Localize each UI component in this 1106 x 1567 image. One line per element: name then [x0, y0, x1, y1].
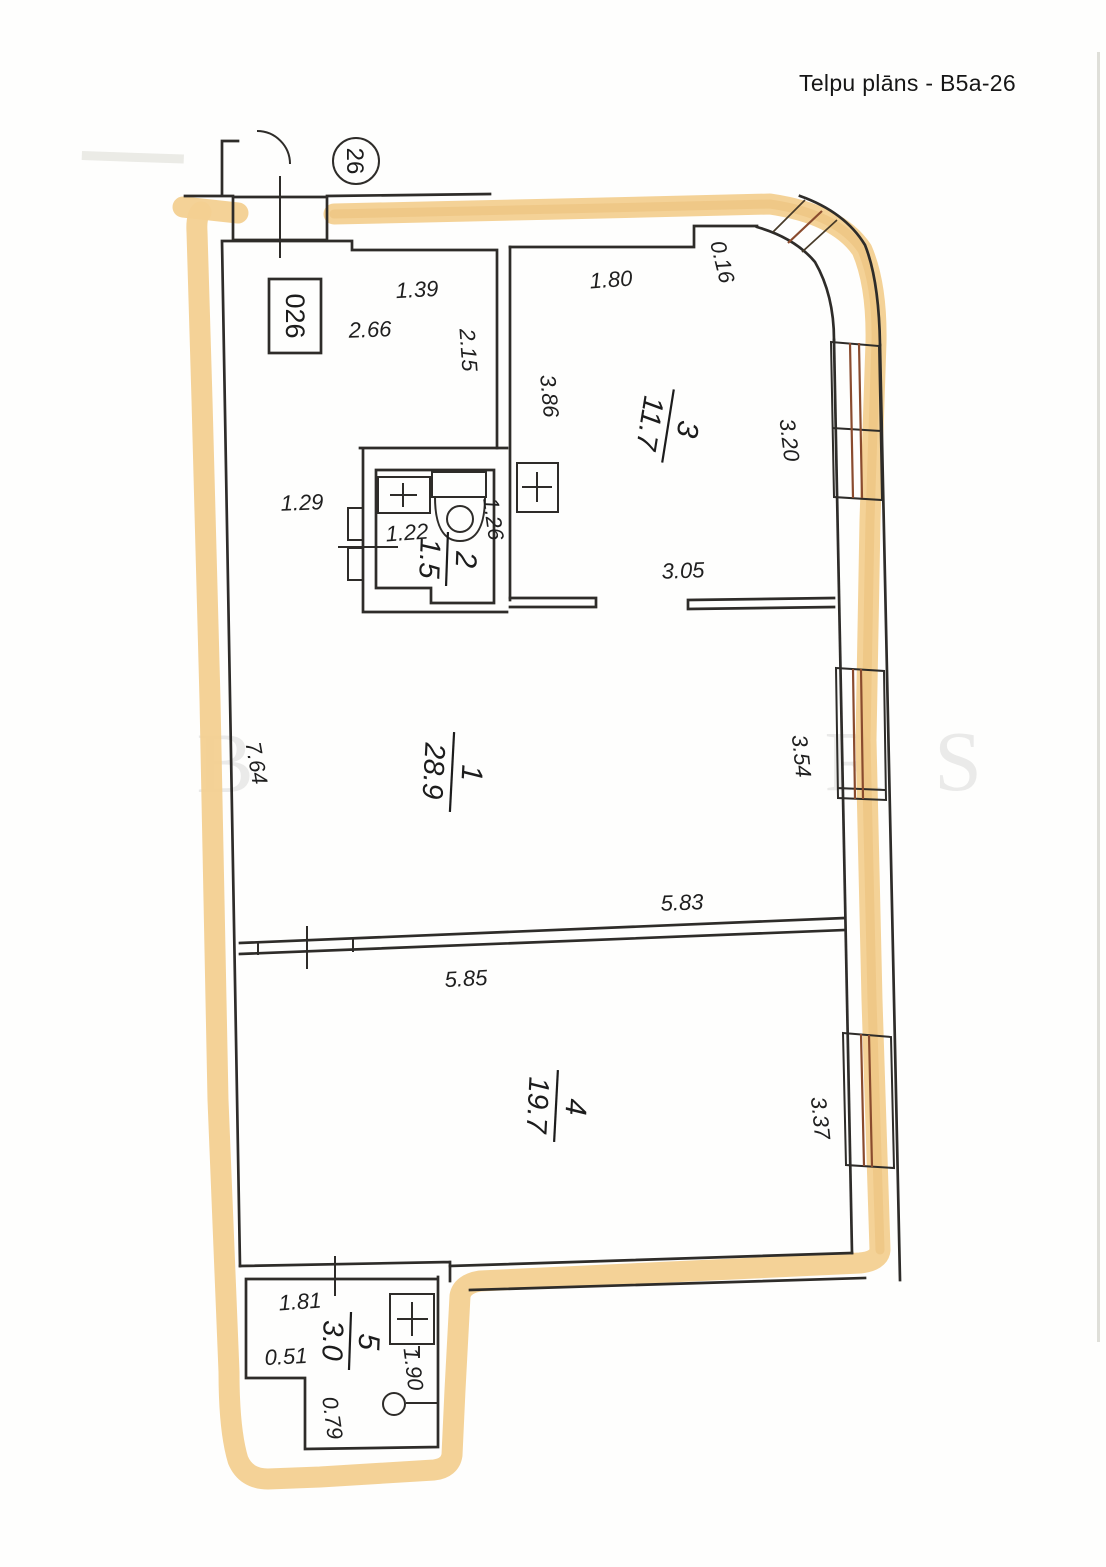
- room5-number: 5: [352, 1333, 386, 1351]
- dim-bath-126: 1.26: [478, 496, 509, 543]
- dim-entry-width: 1.39: [395, 276, 439, 303]
- dim-room1-354: 3.54: [787, 733, 816, 778]
- dim-room5-181: 1.81: [278, 1288, 322, 1316]
- highlighter-overlap-shade: [334, 204, 880, 1250]
- room5-stove: [390, 1294, 434, 1344]
- dim-room3-305: 3.05: [661, 557, 705, 584]
- room1-room4-wall: [240, 918, 845, 955]
- bathroom-sink-cross-icon: [390, 483, 417, 507]
- scan-smudge: [82, 151, 184, 164]
- dim-room3-016: 0.16: [705, 238, 740, 286]
- room5-stove-cross-icon: [397, 1302, 428, 1336]
- bathroom-sink: [378, 477, 430, 513]
- room3-bottom-wall: [510, 598, 834, 609]
- room4-area: 19.7: [519, 1076, 554, 1136]
- stairwell-walls: [185, 141, 490, 196]
- room3-number: 3: [670, 418, 705, 440]
- dimension-ticks: [307, 547, 398, 1296]
- room-label-2: 2 1.5: [412, 531, 483, 587]
- dim-room1-583: 5.83: [660, 889, 704, 916]
- room1-number: 1: [455, 764, 489, 782]
- room-label-1: 1 28.9: [415, 730, 490, 814]
- watermark-letter: S: [934, 713, 982, 809]
- dim-hall-129: 1.29: [280, 489, 324, 515]
- unit-number: 026: [280, 293, 310, 338]
- boiler-circle: [383, 1393, 405, 1415]
- bathroom-wall-recess: [348, 508, 363, 580]
- dim-room3-386: 3.86: [535, 374, 564, 420]
- room-label-4: 4 19.7: [519, 1068, 594, 1144]
- room1-room4-double-wall: [240, 918, 845, 954]
- toilet-bowl-circle: [447, 506, 473, 532]
- dim-room5-079: 0.79: [317, 1395, 348, 1441]
- stairwell-number: 26: [341, 148, 368, 175]
- room2-area: 1.5: [412, 538, 445, 580]
- scan-page-edge-line: [1097, 52, 1100, 1342]
- room5-area: 3.0: [315, 1320, 348, 1361]
- room-label-3: 3 11.7: [628, 384, 710, 468]
- floor-plan-drawing: B R S 26 026: [0, 0, 1106, 1567]
- corner-curve-interior: [757, 227, 834, 340]
- kitchen-sink-cross-icon: [522, 472, 552, 502]
- door-swing-arc: [257, 131, 290, 164]
- room2-number: 2: [449, 550, 483, 569]
- dim-room5-190: 1.90: [398, 1346, 428, 1392]
- dim-hall-215: 2.15: [454, 327, 482, 373]
- dim-room5-051: 0.51: [264, 1343, 308, 1370]
- room-labels: 1 28.9 2 1.5 3 11.7 4 19.7 5: [315, 384, 709, 1371]
- room1-area: 28.9: [416, 741, 451, 800]
- kitchen-sink: [517, 463, 558, 512]
- room3-area: 11.7: [629, 394, 669, 454]
- dim-room4-337: 3.37: [806, 1095, 835, 1141]
- scanned-floor-plan-page: Telpu plāns - B5a-26 B R S 26 026: [0, 0, 1106, 1567]
- dim-room3-320: 3.20: [774, 417, 804, 463]
- window-room3-glazing: [850, 343, 862, 498]
- dim-room4-585: 5.85: [444, 965, 489, 992]
- toilet: [432, 472, 486, 541]
- room4-number: 4: [559, 1098, 593, 1116]
- room-label-5: 5 3.0: [315, 1311, 386, 1371]
- dim-room3-180: 1.80: [589, 265, 634, 293]
- toilet-bowl: [435, 497, 485, 541]
- dim-hall-266: 2.66: [347, 316, 392, 343]
- toilet-tank: [432, 472, 486, 497]
